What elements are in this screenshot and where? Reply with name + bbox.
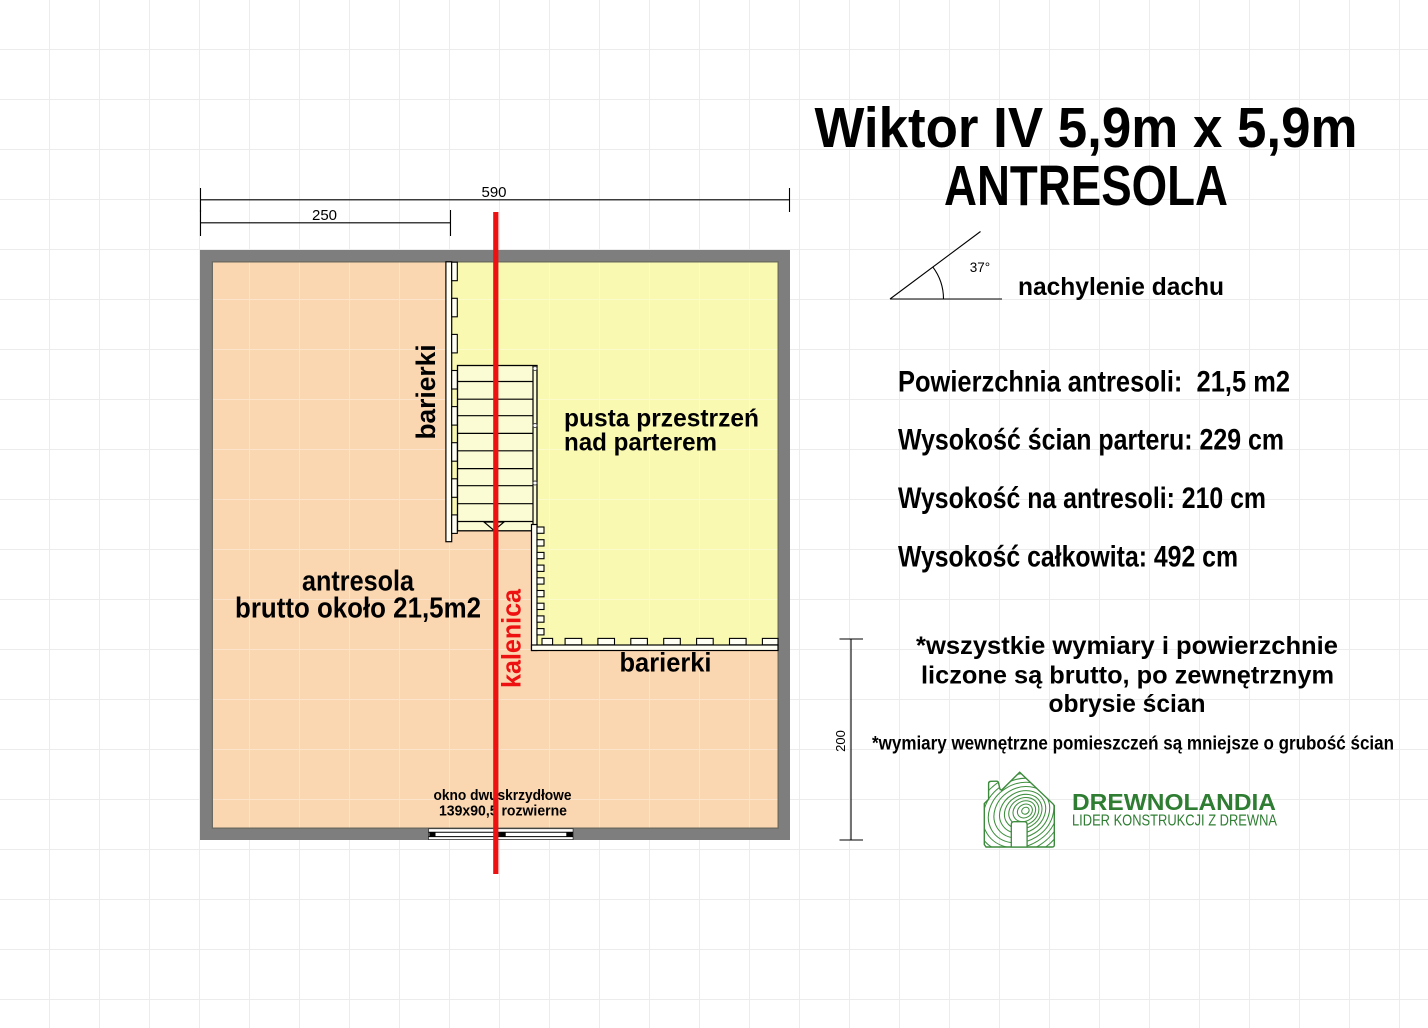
svg-text:37°: 37° <box>970 260 990 275</box>
svg-text:250: 250 <box>312 207 337 224</box>
svg-text:obrysie ścian: obrysie ścian <box>1049 690 1206 718</box>
svg-text:barierki: barierki <box>411 345 441 440</box>
svg-text:Wysokość na antresoli: 210 cm: Wysokość na antresoli: 210 cm <box>898 482 1266 515</box>
svg-text:Wysokość całkowita: 492 cm: Wysokość całkowita: 492 cm <box>898 540 1238 573</box>
svg-text:brutto około 21,5m2: brutto około 21,5m2 <box>235 593 481 625</box>
svg-text:DREWNOLANDIA: DREWNOLANDIA <box>1072 789 1276 815</box>
svg-text:nad parterem: nad parterem <box>564 429 717 457</box>
svg-text:ANTRESOLA: ANTRESOLA <box>944 154 1228 218</box>
svg-text:Wiktor IV 5,9m x 5,9m: Wiktor IV 5,9m x 5,9m <box>815 96 1358 160</box>
svg-text:139x90,5 rozwierne: 139x90,5 rozwierne <box>439 804 567 820</box>
svg-text:Powierzchnia antresoli: 21,5: Powierzchnia antresoli: 21,5 m2 <box>898 366 1290 399</box>
svg-text:liczone są brutto, po zewnętrz: liczone są brutto, po zewnętrznym <box>921 662 1334 690</box>
svg-text:200: 200 <box>833 730 848 752</box>
svg-text:nachylenie dachu: nachylenie dachu <box>1018 273 1224 301</box>
svg-text:*wszystkie wymiary i powierzch: *wszystkie wymiary i powierzchnie <box>916 632 1338 660</box>
svg-text:Wysokość ścian parteru: 229 cm: Wysokość ścian parteru: 229 cm <box>898 424 1284 457</box>
svg-text:590: 590 <box>481 184 506 201</box>
svg-text:barierki: barierki <box>620 648 712 678</box>
svg-text:kalenica: kalenica <box>497 588 527 688</box>
svg-text:*wymiary wewnętrzne pomieszcze: *wymiary wewnętrzne pomieszczeń są mniej… <box>872 734 1394 755</box>
svg-text:LIDER KONSTRUKCJI Z DREWNA: LIDER KONSTRUKCJI Z DREWNA <box>1072 813 1278 830</box>
svg-text:okno dwuskrzydłowe: okno dwuskrzydłowe <box>434 788 572 804</box>
